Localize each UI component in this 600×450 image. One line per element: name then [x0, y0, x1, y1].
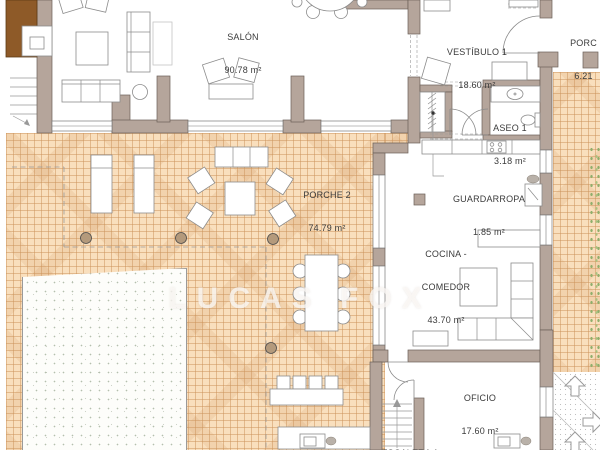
room-name: SALÓN: [224, 32, 261, 43]
room-label-oficio: OFICIO 17.60 m²: [461, 371, 498, 450]
room-label-salon: SALÓN 90.78 m²: [224, 10, 261, 98]
kitchen-appliance-blob: [527, 175, 539, 183]
room-area: 3.18 m²: [493, 156, 527, 167]
outdoor-lounge-set: [186, 147, 296, 229]
room-area: 74.79 m²: [303, 223, 351, 234]
outdoor-grill: [300, 434, 325, 448]
leader-dot: [431, 111, 434, 114]
room-area: 90.78 m²: [224, 65, 261, 76]
salon-armchairs-top: [58, 0, 110, 14]
room-area: 6.21: [561, 71, 600, 82]
salon-coffee-table: [76, 32, 108, 65]
room-label-vestibulo1: VESTÍBULO 1 18.60 m²: [447, 25, 507, 113]
room-name: COCINA -: [422, 249, 470, 260]
oficio-blob: [521, 437, 531, 445]
floor-plan: LUCAS FOX SALÓN 90.78 m² VESTÍBULO 1 18.…: [0, 0, 600, 450]
room-label-porche1: PORC 6.21: [561, 16, 600, 104]
room-label-escalera1: ESCALERA 1 3.60 m²: [381, 426, 438, 450]
outdoor-dining-table: [293, 255, 350, 331]
salon-round-table: [133, 85, 148, 100]
room-area: 18.60 m²: [447, 80, 507, 91]
room-name: PORC: [561, 38, 600, 49]
exterior-stairs: [10, 74, 40, 124]
kitchen-appliance: [525, 184, 542, 206]
room-area: 17.60 m²: [461, 426, 498, 437]
room-area: 43.70 m²: [422, 315, 470, 326]
salon-sofa-horizontal: [62, 80, 120, 102]
salon-sofa-vertical: [127, 12, 150, 72]
room-label-porche2: PORCHE 2 74.79 m²: [303, 168, 351, 256]
ramp-arrows: [553, 372, 600, 450]
room-name: PORCHE 2: [303, 190, 351, 201]
room-name: COMEDOR: [422, 282, 470, 293]
room-name: ASEO 1: [493, 123, 527, 134]
fireplace: [22, 26, 52, 56]
porch-columns: [81, 233, 279, 354]
room-name: GUARDARROPA: [453, 194, 525, 205]
sun-loungers: [91, 155, 154, 213]
room-name: OFICIO: [461, 393, 498, 404]
room-name: VESTÍBULO 1: [447, 47, 507, 58]
grill-blob: [326, 437, 336, 445]
stairs-up-arrowhead: [393, 399, 401, 407]
salon-rug: [153, 22, 172, 65]
room-label-cocina-comedor: COCINA - COMEDOR 43.70 m²: [422, 227, 470, 348]
